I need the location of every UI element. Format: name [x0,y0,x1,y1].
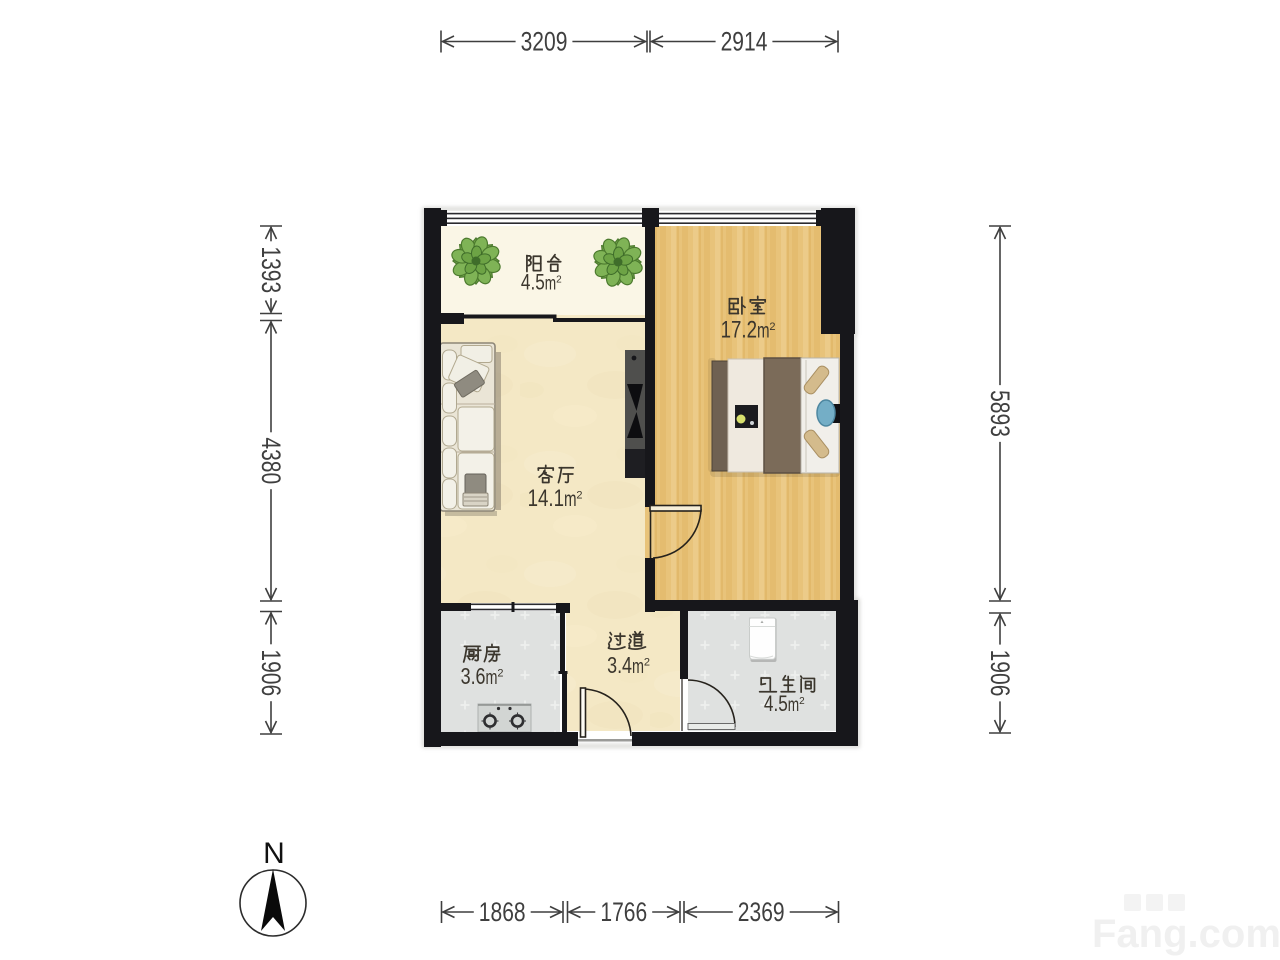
svg-text:2: 2 [497,667,503,679]
svg-text:m: m [545,272,556,294]
svg-text:4380: 4380 [255,437,285,484]
svg-text:2914: 2914 [721,27,768,57]
svg-text:3.6: 3.6 [461,664,486,690]
svg-text:4.5: 4.5 [521,270,545,295]
svg-text:2: 2 [644,656,650,668]
svg-text:1766: 1766 [600,898,647,928]
svg-text:2: 2 [769,321,775,333]
svg-text:m: m [486,665,498,688]
svg-text:N: N [263,837,285,870]
svg-text:1906: 1906 [984,650,1014,697]
svg-text:14.1: 14.1 [528,485,564,512]
svg-text:m: m [632,654,644,677]
svg-text:4.5: 4.5 [764,692,788,717]
svg-text:1906: 1906 [255,649,285,696]
svg-text:1868: 1868 [479,898,526,928]
svg-text:m: m [564,487,577,511]
svg-text:Fang.com: Fang.com [1092,912,1280,956]
svg-text:2: 2 [799,696,805,707]
svg-text:17.2: 17.2 [721,316,757,343]
svg-text:2: 2 [576,490,582,502]
svg-text:3209: 3209 [521,27,568,57]
svg-text:m: m [757,318,770,342]
svg-text:3.4: 3.4 [607,653,632,679]
svg-text:2369: 2369 [738,898,785,928]
svg-text:m: m [788,694,799,716]
svg-text:1393: 1393 [255,246,285,293]
svg-text:5893: 5893 [984,390,1014,437]
svg-text:2: 2 [556,274,562,285]
